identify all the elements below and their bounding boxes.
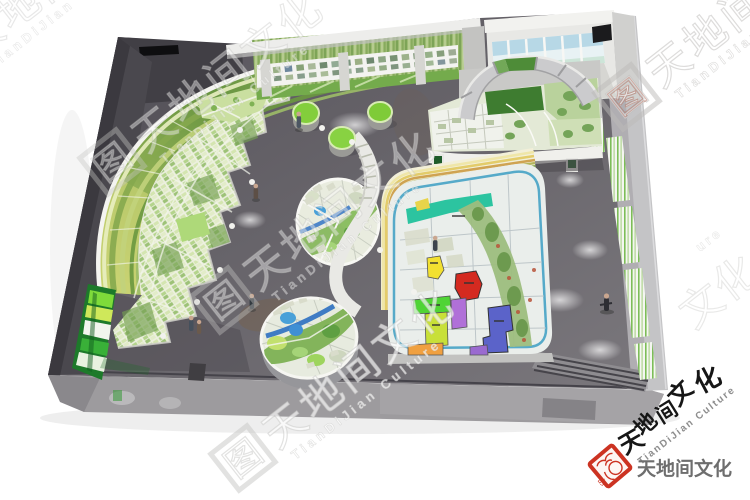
svg-text:ure: ure <box>693 225 725 255</box>
svg-text:天地间文化: 天地间文化 <box>637 457 732 480</box>
